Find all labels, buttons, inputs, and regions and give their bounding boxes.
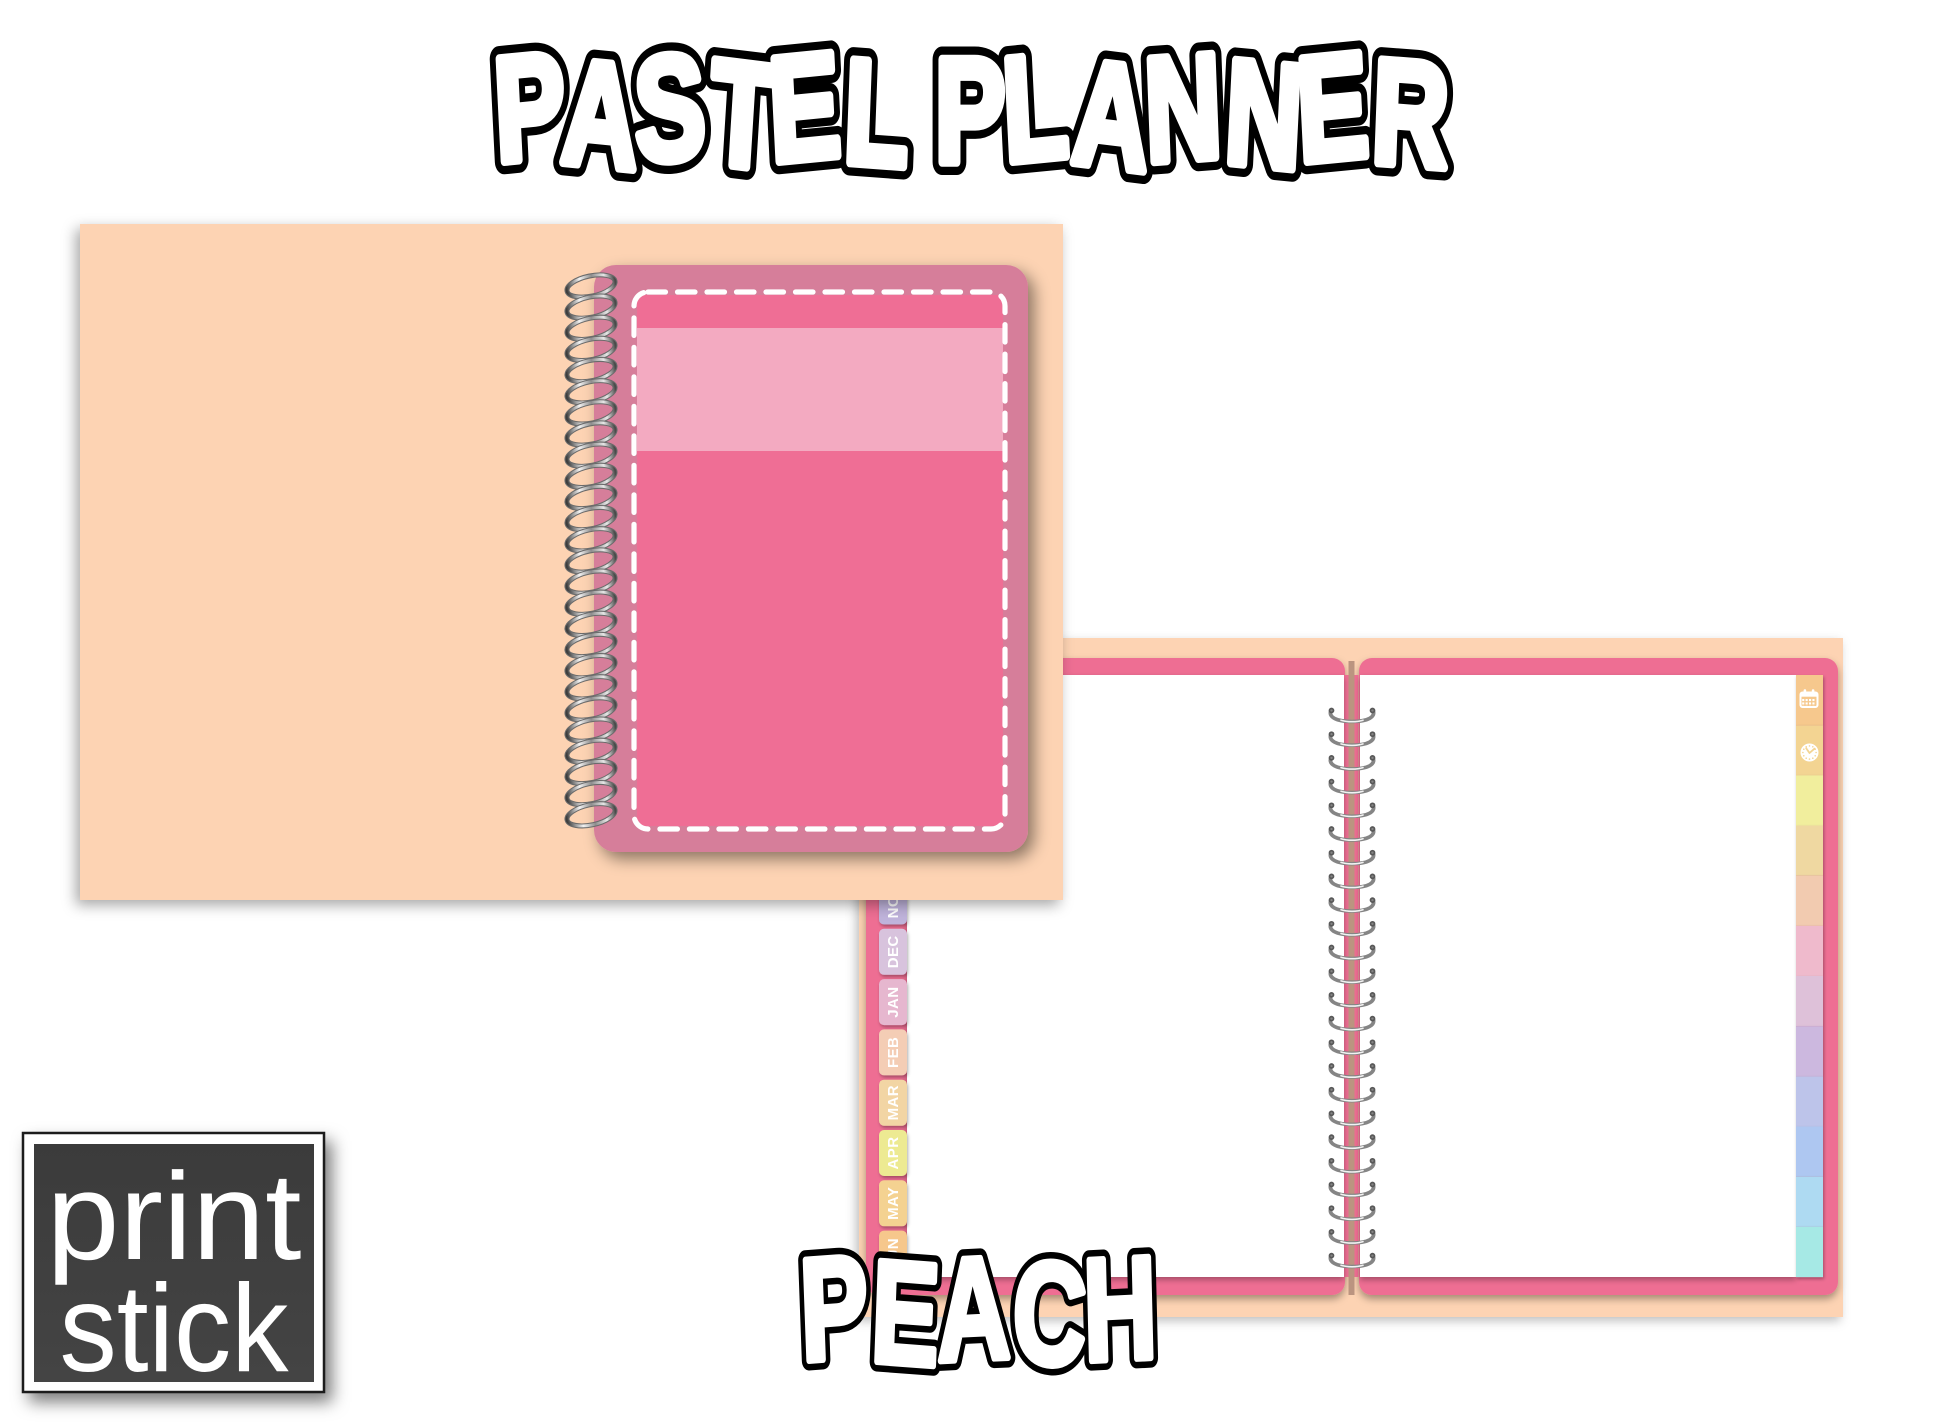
svg-text:MAR: MAR [885, 1085, 902, 1120]
svg-text:PEACH: PEACH [795, 1226, 1159, 1396]
svg-text:FEB: FEB [885, 1037, 902, 1068]
svg-text:DEC: DEC [885, 935, 902, 968]
svg-text:MAY: MAY [885, 1187, 902, 1220]
svg-text:JAN: JAN [885, 986, 902, 1017]
svg-text:PASTEL PLANNER: PASTEL PLANNER [488, 22, 1454, 200]
svg-text:APR: APR [885, 1137, 902, 1170]
svg-text:stick: stick [60, 1260, 290, 1398]
